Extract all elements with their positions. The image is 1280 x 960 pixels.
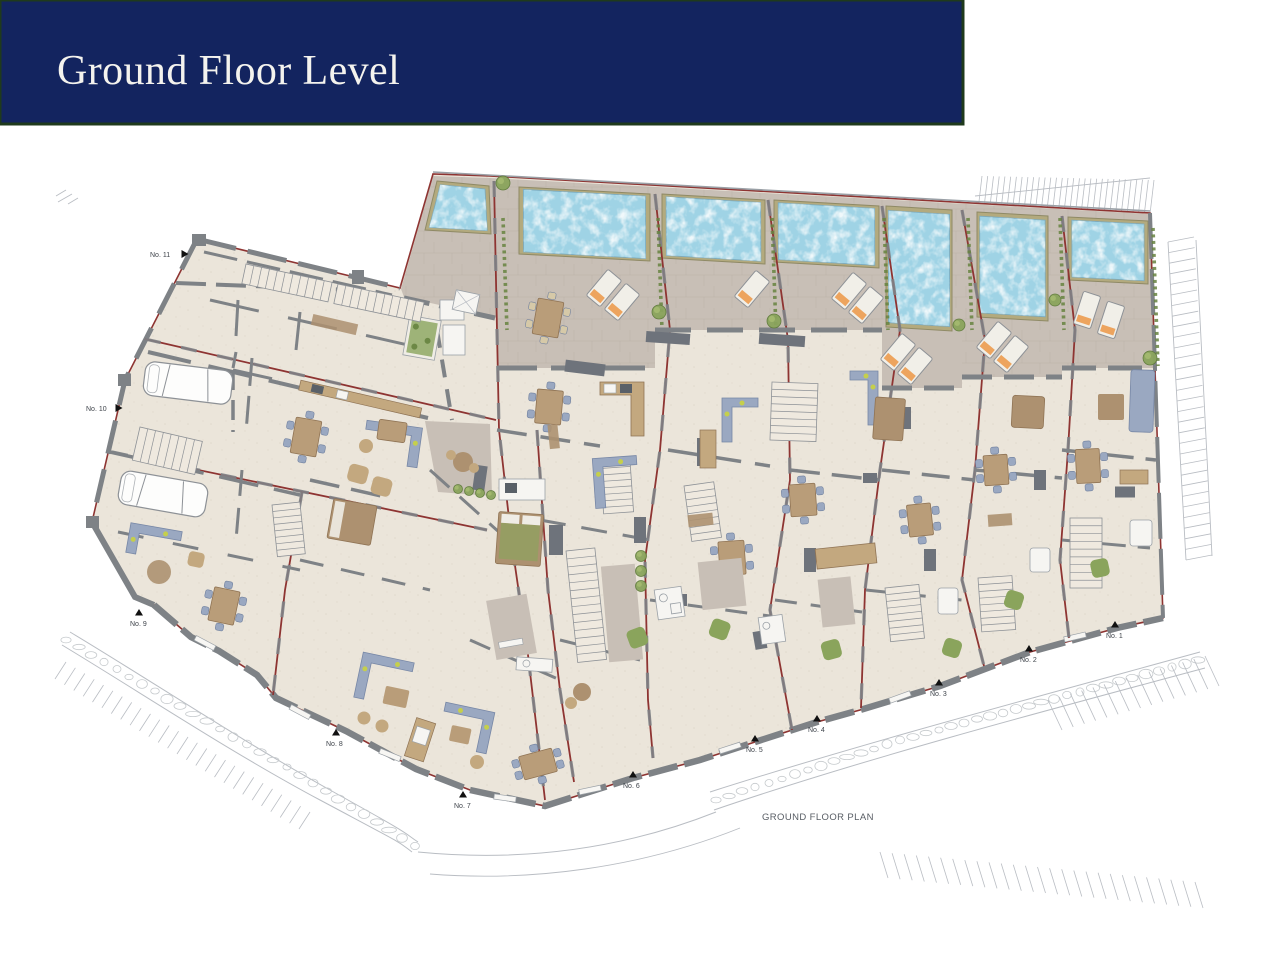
svg-text:No. 7: No. 7 [454,803,471,810]
svg-text:No. 3: No. 3 [930,691,947,698]
svg-text:No. 6: No. 6 [623,783,640,790]
svg-text:No. 1: No. 1 [1106,633,1123,640]
svg-text:No. 11: No. 11 [150,252,170,259]
svg-text:No. 5: No. 5 [746,747,763,754]
svg-text:No. 10: No. 10 [86,406,107,413]
svg-text:GROUND FLOOR PLAN: GROUND FLOOR PLAN [762,812,874,823]
svg-text:No. 9: No. 9 [130,621,147,628]
svg-text:No. 4: No. 4 [808,727,825,734]
svg-text:No. 8: No. 8 [326,741,343,748]
svg-text:Ground Floor Level: Ground Floor Level [57,48,400,94]
svg-text:No. 2: No. 2 [1020,657,1037,664]
